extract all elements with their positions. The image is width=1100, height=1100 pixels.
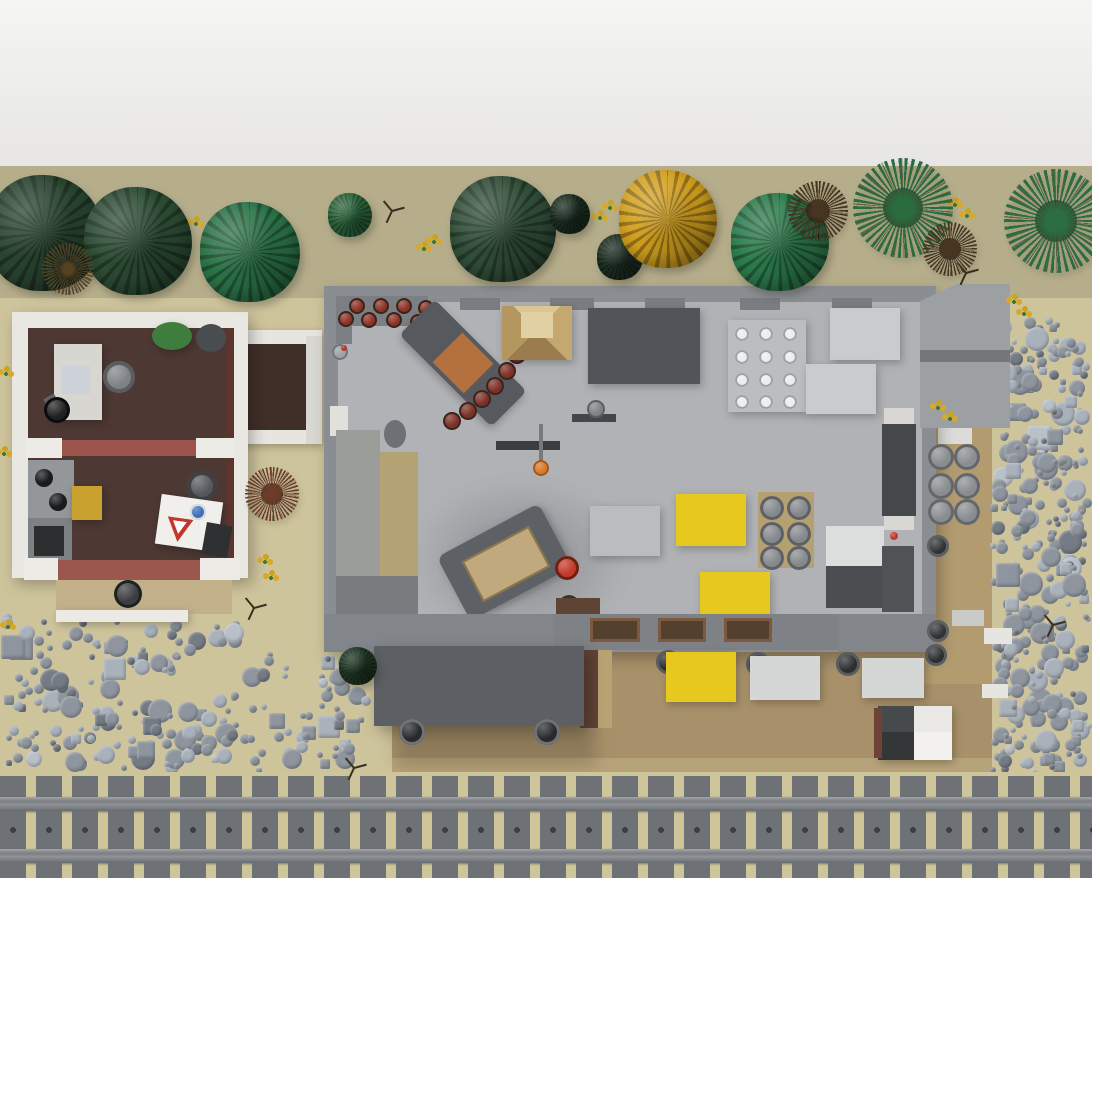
cobblestone [1001,505,1007,511]
cobblestone [211,755,219,763]
deck-table [954,473,980,499]
stove-panel [34,526,64,556]
bar-stool [396,298,412,314]
cobblestone [1051,409,1057,415]
cobblestone [1086,723,1092,729]
station-divider-red [58,440,202,456]
cobblestone [97,746,115,764]
hall-pilaster-5 [740,298,780,310]
cobblestone [167,664,175,672]
cobblestone [1029,357,1035,363]
platform-step-3 [952,610,984,626]
cobblestone [1039,367,1047,375]
dish-plate [783,373,797,387]
table-grey-b [806,364,876,414]
cobblestone [213,694,227,708]
cobblestone [132,710,138,716]
cobblestone [256,668,270,682]
cobblestone [95,643,101,649]
divider-white-left [26,438,62,458]
bar-stool [373,298,389,314]
cobblestone [144,624,158,638]
cobblestone [121,765,127,771]
cobblestone [1065,601,1071,607]
keg-barrel [787,496,811,520]
cobblestone [1035,730,1057,752]
cobblestone [1058,385,1066,393]
cobblestone [1049,370,1059,380]
cobblestone [998,754,1012,768]
cobblestone [1011,339,1017,345]
cobblestone [1062,573,1086,597]
rail-bottom [0,849,1092,863]
cobblestone [106,635,128,657]
cobblestone [100,679,120,699]
cobblestone [317,752,323,758]
twig [378,198,404,224]
cobblestone [1044,658,1064,678]
tree-golden [619,170,717,268]
twig [340,755,366,781]
platform-stool [836,652,860,676]
cobblestone [1022,757,1034,769]
cobblestone [34,698,42,706]
cobblestone [250,756,260,766]
cobblestone [274,732,284,742]
equipment-cabinet-1 [882,424,916,516]
cobblestone [1053,338,1059,344]
cobblestone [128,736,136,744]
twig [1039,612,1065,638]
cobblestone [174,763,180,769]
pendant-bar [496,441,560,450]
cobblestone [282,673,288,679]
cobblestone [26,751,42,767]
flowers [0,366,14,378]
cobblestone [1072,720,1084,732]
tie-row-top [0,776,1092,798]
flowers [592,210,608,222]
cobblestone [60,696,82,718]
cobblestone [1029,666,1035,672]
dish-plate [783,327,797,341]
bush-maroon [245,467,299,521]
stairs-run-right [380,452,418,576]
sign-blue-roundel [190,504,206,520]
cobblestone [1010,684,1024,698]
flowers [426,234,442,246]
cobblestone [164,761,170,767]
bench-stool [473,390,491,408]
cobblestone [53,744,61,752]
cobblestone [1014,444,1020,450]
cobblestone [284,728,292,736]
platform-step-1 [984,628,1012,644]
cobblestone [116,724,122,730]
bottom-margin-cover [0,878,1100,1100]
cobblestone [1066,751,1072,757]
cobblestone [1054,322,1060,328]
dish-plate [783,395,797,409]
crate-bw-edge [874,708,882,758]
cobblestone [1061,470,1067,476]
cobblestone [332,753,338,759]
crate-bw-dark [878,732,914,760]
cobblestone [319,703,325,709]
cobblestone [50,725,62,737]
cobblestone [1078,447,1084,453]
cobblestone [88,679,94,685]
flowers [257,554,273,566]
cobblestone [1057,498,1067,508]
cobblestone [1077,428,1083,434]
serving-tray [724,618,772,642]
cobblestone [282,749,302,769]
bush-dried [42,243,94,295]
keg-barrel [760,546,784,570]
tree-small [328,193,372,237]
cobblestone [34,636,44,646]
cobblestone [78,726,84,732]
cobblestone [1018,607,1032,621]
cobblestone [320,759,330,769]
flowers [0,619,16,631]
cobblestone [181,749,195,763]
cobblestone [178,702,198,722]
cobblestone [335,711,345,721]
pendant-cable [539,424,543,464]
table-yellow-1 [676,494,746,546]
bar-stool [386,312,402,328]
cobblestone [1009,352,1023,366]
stove-top [28,460,74,518]
twig [240,595,266,621]
cobblestone [264,656,274,666]
table-grey-c [590,506,660,556]
cobblestone [1050,482,1056,488]
cobblestone [1050,677,1058,685]
station-pot [196,324,226,352]
cobblestone [305,712,313,720]
cobblestone [258,749,266,757]
awning-wheel [399,719,425,745]
flowers [1016,306,1032,318]
bench-stool [459,402,477,420]
flowers [959,208,975,220]
bush-dark-green [339,647,377,685]
small-lamp [587,400,605,418]
station-stool [103,361,135,393]
cobblestone [358,717,364,723]
table-white-dark-bottom [826,566,884,608]
cobblestone [25,687,33,695]
flowers [1006,294,1022,306]
pinecone-bush [923,222,977,276]
cobblestone [117,700,123,706]
cobblestone [231,692,239,700]
tie-row-bottom [0,863,1092,878]
keg-barrel [787,522,811,546]
dark-box [201,522,232,558]
bar-stool [349,298,365,314]
dish-plate [783,350,797,364]
bar-stool [338,311,354,327]
deck-stool [927,620,949,642]
bush-very-dark [550,194,590,234]
cobblestone [47,645,53,651]
dish-plate [759,373,773,387]
fire-extinguisher [890,532,898,540]
cobblestone [1020,346,1028,354]
coat-pole-red-tip [341,345,347,351]
bench-stool [443,412,461,430]
station-table-tile [62,366,90,394]
cobblestone [1043,638,1049,644]
cobblestone [134,659,150,675]
crate-bw-white-bottom [914,732,952,760]
cobblestone [1030,681,1036,687]
serving-tray [658,618,706,642]
cobblestone [1017,406,1033,422]
equipment-white-1 [884,408,914,424]
cobblestone [1078,456,1088,466]
cobblestone [184,644,196,656]
cobblestone [105,712,119,726]
cobblestone [1060,514,1068,522]
cobblestone [175,638,183,646]
cobblestone [167,713,173,719]
yellow-crate [72,486,102,520]
cobblestone [201,711,217,727]
rail-top [0,797,1092,811]
stove-burner-1 [35,469,53,487]
cobblestone [29,733,35,739]
cobblestone [247,735,255,743]
walkway-floor [238,344,308,430]
cobblestone [1055,521,1061,527]
cobblestone [92,707,100,715]
door-steps-side [598,650,612,728]
cobblestone [18,691,26,699]
roof-ridge [920,350,1010,362]
cobblestone [217,637,227,647]
cobblestone [30,667,38,675]
cobblestone [1011,525,1023,537]
cobblestone [1003,432,1009,438]
cobblestone [1065,739,1077,751]
cobblestone [1047,429,1063,445]
cobblestone [71,734,81,744]
dish-plate [759,327,773,341]
cobblestone [1074,409,1090,425]
cobblestone [249,705,257,713]
table-white-1 [750,656,820,700]
cobblestone [1064,507,1070,513]
cobblestone [1066,338,1076,348]
cobblestone [1013,629,1019,635]
bar-stool [361,312,377,328]
backdrop-top [0,0,1100,166]
keg-barrel [760,522,784,546]
cobblestone [226,729,238,741]
station-stool-2 [187,471,217,501]
cobblestone [175,654,181,660]
cobblestone [113,741,121,749]
cobblestone [1004,643,1018,657]
hall-bottom-wall-right [838,614,936,652]
flowers [188,216,204,228]
cobblestone [1021,734,1027,740]
cobblestone [1013,657,1019,663]
deck-table [954,499,980,525]
bench-stool [498,362,516,380]
cobblestone [1047,709,1057,719]
cobblestone [1025,327,1049,351]
cobblestone [1019,572,1043,596]
cobblestone [269,713,285,729]
dish-plate [759,350,773,364]
cobblestone [1082,498,1092,508]
cobblestone [990,504,998,512]
cobblestone [325,656,331,662]
cobblestone [1014,740,1024,750]
cobblestone [40,657,52,669]
flowers [263,570,279,582]
table-white-2 [862,658,924,698]
cobblestone [87,735,95,743]
cobblestone [996,542,1008,554]
cobblestone [1082,363,1090,371]
vase-2 [384,420,406,448]
deck-table [954,444,980,470]
cobblestone [1023,649,1029,655]
cobbles-left-a [0,612,244,775]
keg-barrel [760,496,784,520]
cobblestone [343,743,355,755]
cobblestone [1065,396,1077,408]
cobblestone [1005,598,1019,612]
cobblestone [1081,645,1089,653]
flowers [942,411,958,423]
deck-table [928,473,954,499]
deck-stool [927,535,949,557]
cobblestone [992,486,1008,502]
cobblestone [1020,510,1036,526]
cobblestone [333,745,339,751]
cobblestone [41,619,47,625]
tree-dark [450,176,556,282]
cobblestone [1077,391,1083,397]
awning-wheel [534,719,560,745]
table-white-dark-top [826,526,884,566]
station-porch [56,580,232,614]
serving-tray [590,618,640,642]
cobblestone [46,630,52,636]
cobblestone [996,563,1020,587]
crate-bw-white-top [914,706,952,732]
station-lamp [44,397,70,423]
cobblestone [19,625,35,641]
platform-step-2 [982,684,1008,698]
cobblestone [13,753,23,763]
cobblestone [34,684,44,694]
diorama-stage [0,0,1100,1100]
table-grey-a [830,308,900,360]
cobblestone [1043,480,1049,486]
cobblestone [69,627,83,641]
tree-green [200,202,300,302]
side-deck-cap [938,428,972,444]
deck-table [928,499,954,525]
cobblestone [225,708,231,714]
hood-top [521,312,553,338]
scene-root [0,0,1100,1100]
keg-barrel [787,546,811,570]
platform-awning [374,646,584,726]
dish-plate [735,395,749,409]
station-base-white-left [24,558,58,580]
dish-plate [735,350,749,364]
cobblestone [89,654,95,660]
turtle-planter [152,322,192,350]
brown-bench [556,598,600,614]
wine-rack [588,308,700,384]
flowers [0,446,12,458]
cobblestone [150,724,162,736]
deck-table [928,444,954,470]
walkway-shutter-right [306,336,322,444]
cobblestone [1027,446,1037,456]
cobblestone [991,521,1005,535]
cobblestone [1031,542,1041,552]
cobblestone [1037,357,1047,367]
dish-plate [735,373,749,387]
cobblestone [1035,500,1045,510]
dish-plate [735,327,749,341]
cobblestone [1080,713,1088,721]
cobblestone [162,739,172,749]
cobblestone [1046,519,1052,525]
cobblestone [104,658,126,680]
stairs-run-left [336,430,380,576]
cobblestone [1005,463,1021,479]
cobblestone [1046,574,1054,582]
hall-pilaster-2 [460,298,500,310]
equipment-white-2 [884,516,914,530]
porch-barrel [114,580,142,608]
cobblestone [6,735,12,741]
cobblestone [283,665,289,671]
ties-mid [0,811,1092,849]
red-stool [555,556,579,580]
cobblestone [1007,494,1017,504]
porch-bench [56,610,188,622]
cobblestone [137,741,155,759]
tree-dark [84,187,192,295]
cobblestone [6,760,12,766]
pine-tree [1004,169,1100,273]
cobblestone [1070,523,1084,537]
cobblestone [334,720,344,730]
platform-stool [925,644,947,666]
cobblestone [1010,727,1016,733]
pendant-bulb [533,460,549,476]
cobblestone [1049,764,1055,770]
dish-plate [759,395,773,409]
equipment-cabinet-2 [882,546,914,612]
cobblestone [361,696,371,706]
cobblestone [62,640,72,650]
